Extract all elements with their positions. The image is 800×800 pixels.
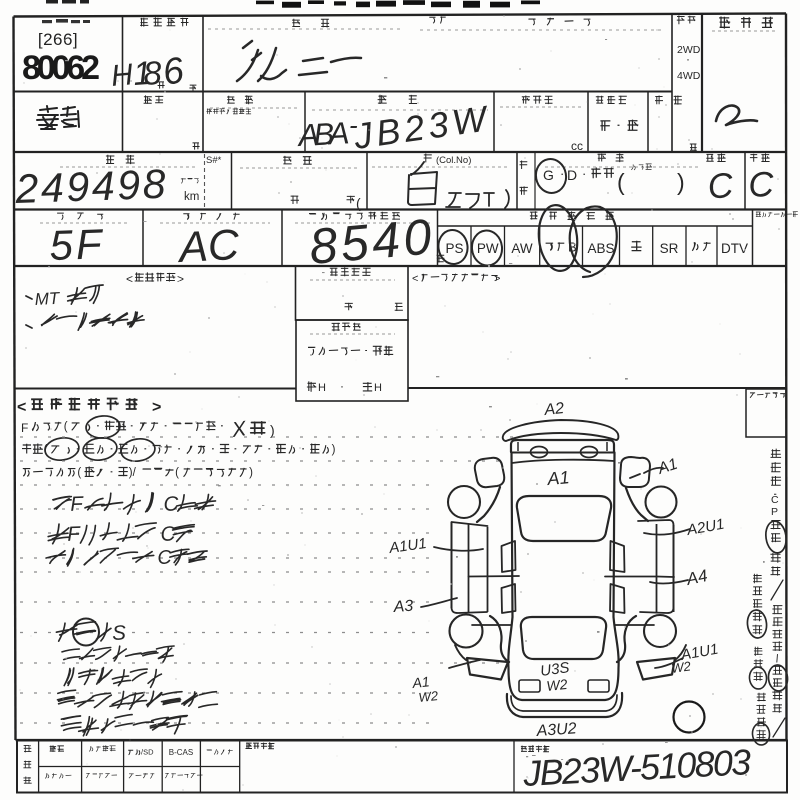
svg-text:/SD: /SD (141, 748, 154, 757)
svg-text:G: G (543, 167, 554, 183)
svg-text:PS: PS (445, 241, 463, 256)
svg-text:4WD: 4WD (677, 70, 701, 82)
svg-text:80062: 80062 (22, 49, 100, 87)
svg-text:>: > (152, 399, 161, 416)
svg-text:S: S (112, 621, 127, 644)
svg-text:S#*: S#* (206, 155, 222, 166)
svg-text:MT: MT (34, 289, 61, 309)
svg-text:F: F (21, 421, 28, 435)
svg-text:): ) (270, 422, 275, 438)
svg-text:km: km (184, 191, 199, 203)
svg-text:(: ( (617, 169, 625, 195)
svg-text:H: H (318, 382, 326, 394)
svg-text:F: F (70, 492, 85, 515)
svg-text:<: < (126, 272, 133, 286)
svg-text:(: ( (175, 467, 179, 479)
svg-text:): ) (332, 444, 336, 456)
svg-text:)/: )/ (129, 467, 137, 479)
svg-text:H: H (110, 58, 135, 93)
svg-text:ABA: ABA (296, 115, 351, 153)
svg-text:B-CAS: B-CAS (169, 748, 193, 757)
svg-text:): ) (249, 467, 253, 479)
svg-text:>: > (494, 273, 500, 285)
svg-text:DTV: DTV (721, 241, 748, 256)
svg-text:H: H (374, 382, 382, 394)
svg-text:ABS: ABS (587, 241, 614, 256)
svg-text:A1: A1 (546, 467, 571, 489)
svg-text:cc: cc (571, 139, 583, 153)
svg-text:C: C (163, 492, 179, 516)
svg-text:C: C (706, 165, 736, 207)
svg-text:A2: A2 (543, 400, 565, 419)
svg-text:D: D (567, 167, 577, 183)
svg-text:(: ( (64, 421, 68, 433)
svg-text:<: < (17, 399, 26, 416)
svg-text:5F: 5F (49, 220, 106, 269)
svg-text:(: ( (77, 467, 81, 479)
svg-text:>: > (177, 272, 184, 286)
svg-text:PW: PW (477, 241, 499, 256)
svg-text:W2: W2 (670, 658, 692, 676)
svg-text:W2: W2 (418, 688, 440, 705)
svg-text:F: F (67, 522, 82, 545)
svg-text:(Col.No): (Col.No) (436, 155, 471, 166)
svg-text:AW: AW (511, 241, 533, 256)
svg-text:·: · (686, 52, 690, 66)
svg-text:A3: A3 (392, 598, 414, 616)
svg-text:): ) (677, 169, 685, 195)
svg-text:C: C (747, 165, 775, 205)
svg-text:·: · (582, 166, 586, 181)
svg-text:·: · (340, 379, 344, 393)
svg-text:P: P (771, 506, 778, 518)
svg-text:AC: AC (175, 221, 241, 272)
svg-text:A3U2: A3U2 (535, 720, 577, 740)
svg-text:(: ( (356, 195, 361, 211)
svg-text:<: < (412, 273, 418, 285)
svg-text:W2: W2 (546, 676, 569, 694)
svg-text:C: C (771, 494, 779, 506)
svg-text:[266]: [266] (38, 30, 78, 49)
